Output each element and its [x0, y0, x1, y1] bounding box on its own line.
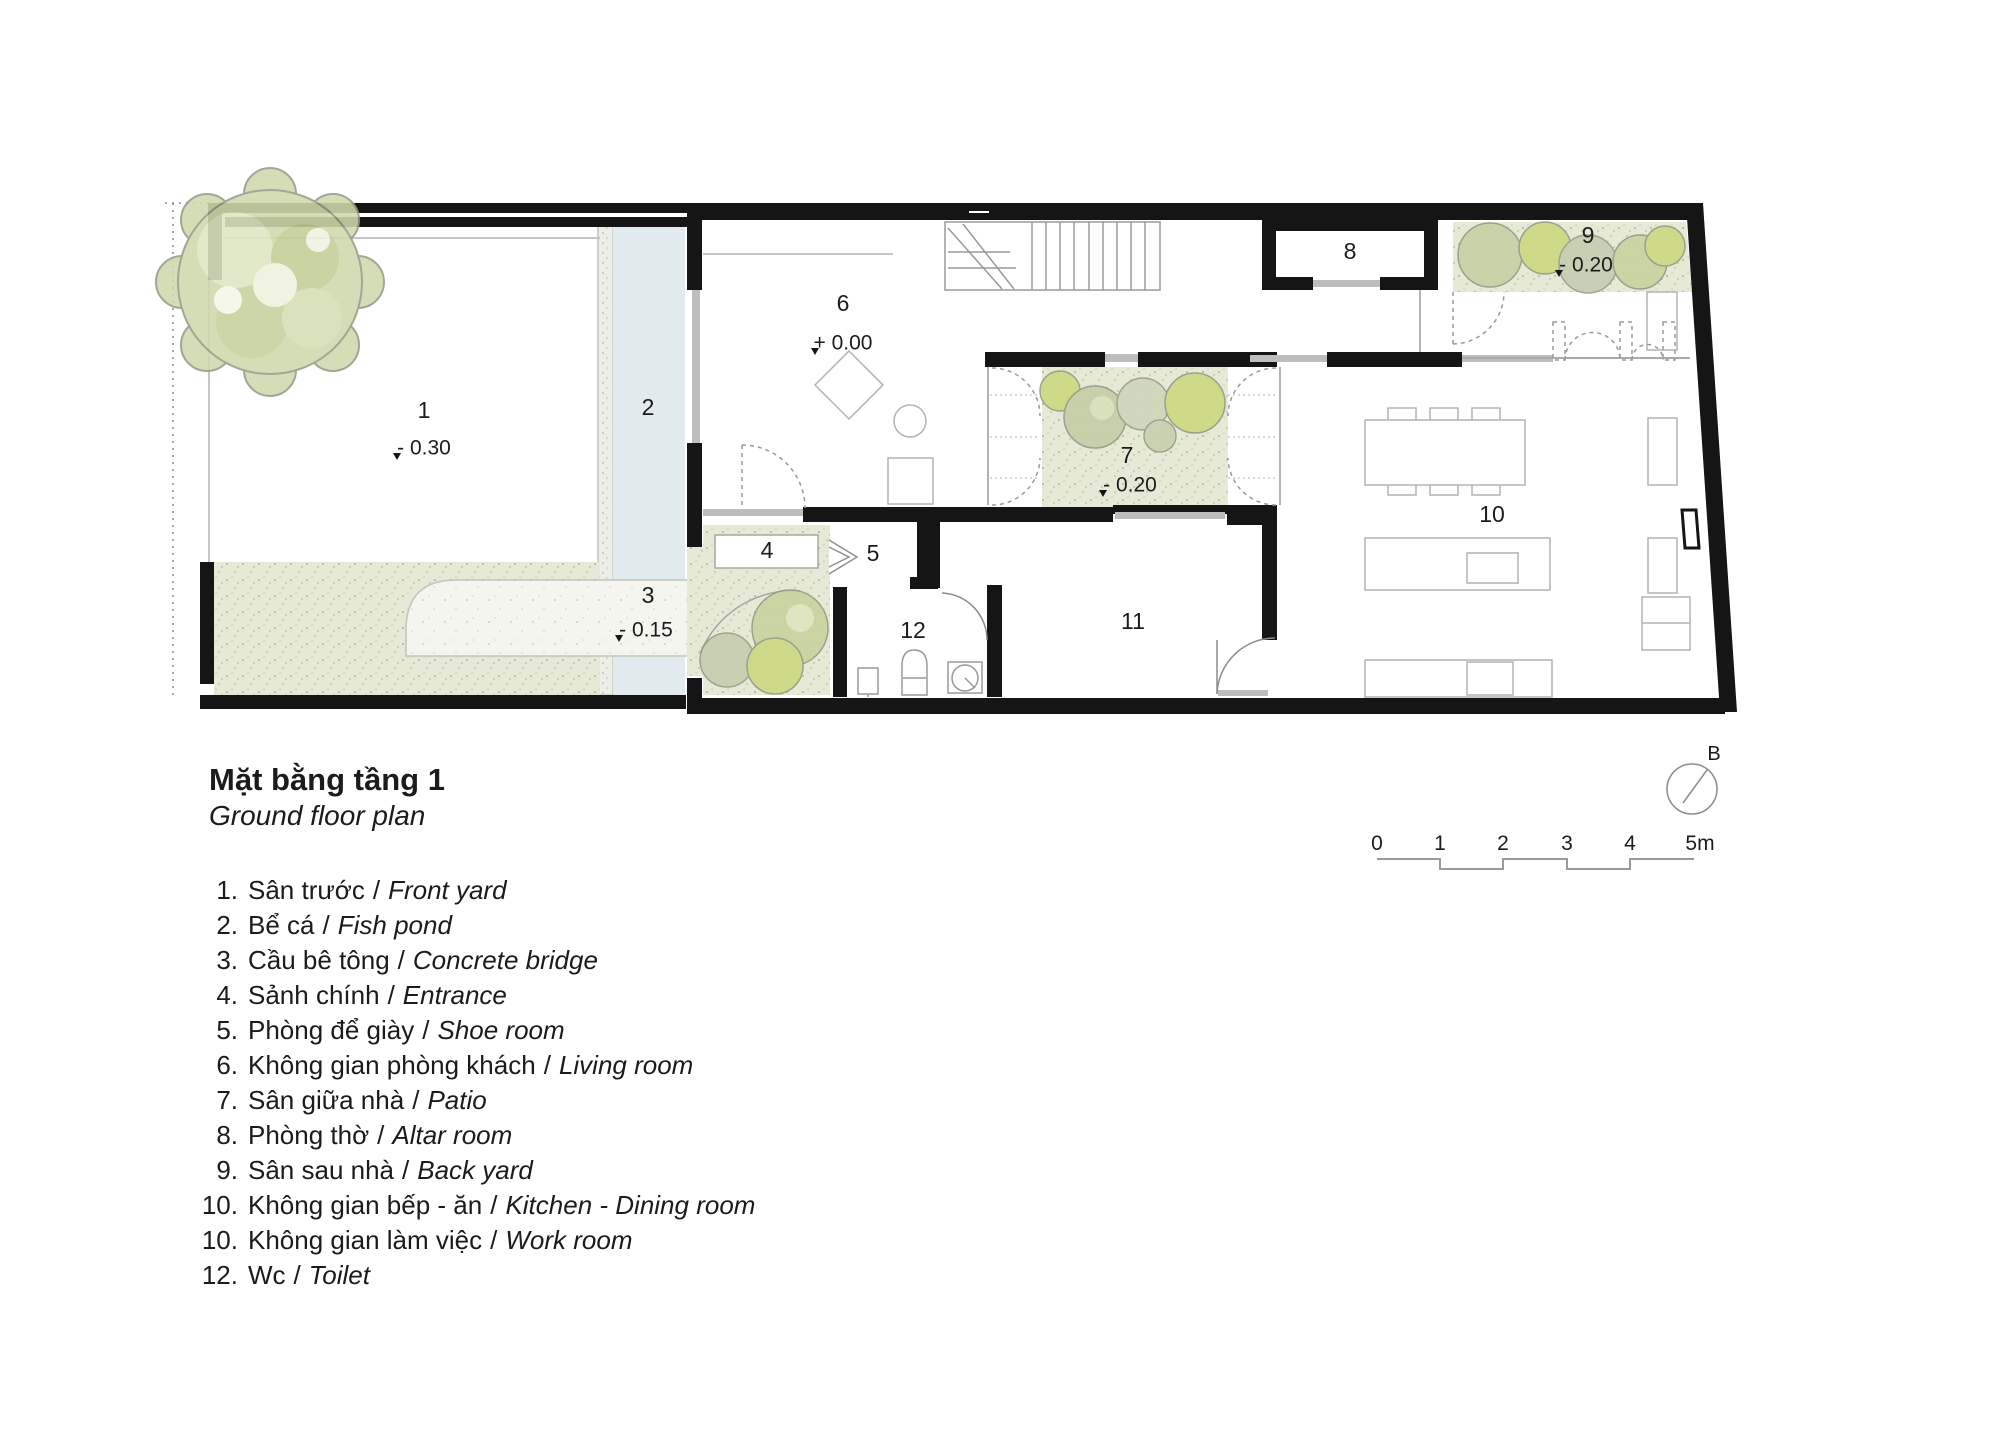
wc-door-arc [942, 593, 987, 640]
legend-vi: Sân giữa nhà [248, 1085, 404, 1115]
legend-item-2: 2.Bể cá/Fish pond [150, 908, 755, 943]
wall-8-top [1262, 220, 1438, 231]
sliding-door-mid [1250, 355, 1327, 362]
legend-vi: Bể cá [248, 910, 315, 940]
legend-sep: / [323, 910, 330, 940]
legend-vi: Phòng để giày [248, 1015, 414, 1045]
legend-en: Patio [427, 1085, 486, 1115]
north-needle [1683, 770, 1707, 803]
legend-num: 9. [150, 1153, 238, 1188]
legend-num: 5. [150, 1013, 238, 1048]
building-left-wall-c [687, 678, 702, 698]
building-bottom-wall [687, 698, 1725, 714]
building-left-wall-a [687, 203, 702, 290]
wc-fixtures [858, 650, 982, 697]
wall-wc-top-stub [910, 577, 938, 589]
stove [1467, 662, 1513, 695]
legend-num: 6. [150, 1048, 238, 1083]
top-wall-vent-slot [969, 211, 989, 213]
scale-bar: 0 1 2 3 4 5m [1371, 832, 1714, 869]
sliding-door-patio-top [1105, 354, 1138, 362]
legend-item-4: 4.Sảnh chính/Entrance [150, 978, 755, 1013]
legend-num: 7. [150, 1083, 238, 1118]
scale-tick-4: 4 [1624, 832, 1636, 855]
patio-fold-arc-2 [992, 458, 1040, 505]
yard-bottom-wall [200, 695, 686, 709]
dining-table [1365, 420, 1525, 485]
colonnade-post-1 [1553, 322, 1565, 360]
legend-item-8: 8.Phòng thờ/Altar room [150, 1118, 755, 1153]
legend-vi: Sân sau nhà [248, 1155, 394, 1185]
legend-item-7: 7.Sân giữa nhà/Patio [150, 1083, 755, 1118]
legend-en: Kitchen - Dining room [505, 1190, 755, 1220]
legend-sep: / [398, 945, 405, 975]
sliding-door-altar [1313, 280, 1380, 287]
room-label-6: 6 [837, 290, 850, 316]
legend-item-9: 9.Sân sau nhà/Back yard [150, 1153, 755, 1188]
yard-left-wall-bottom [200, 562, 214, 684]
wall-wc-right [987, 585, 1002, 697]
colonnade-post-2 [1620, 322, 1632, 360]
legend-en: Toilet [309, 1260, 370, 1290]
living-door-arc [742, 445, 805, 508]
wc-sink [858, 668, 878, 694]
legend-num: 4. [150, 978, 238, 1013]
room11-door-arc [1217, 638, 1275, 694]
legend-num: 1. [150, 873, 238, 908]
scale-tick-5: 5m [1685, 832, 1714, 855]
living-armchair [815, 351, 883, 419]
legend-en: Shoe room [437, 1015, 564, 1045]
legend-en: Work room [505, 1225, 632, 1255]
patio-fold-arc-1 [992, 368, 1040, 416]
title-block: Mặt bằng tầng 1 Ground floor plan [209, 762, 445, 834]
legend-sep: / [402, 1155, 409, 1185]
legend-sep: / [373, 875, 380, 905]
legend-item-10: 10.Không gian bếp - ăn/Kitchen - Dining … [150, 1188, 755, 1223]
window-left-wall [692, 290, 700, 443]
stair-outline [945, 222, 1160, 290]
legend-vi: Không gian làm việc [248, 1225, 482, 1255]
patio-fold-arc-3 [1228, 368, 1276, 416]
building-top-wall [687, 203, 1690, 220]
legend-item-12: 12.Wc/Toilet [150, 1258, 755, 1293]
colonnade-post-3 [1663, 322, 1675, 360]
entrance-chevron-icon [829, 540, 857, 574]
legend-sep: / [422, 1015, 429, 1045]
room-label-7: 7 [1121, 442, 1134, 468]
scale-tick-1: 1 [1434, 832, 1446, 855]
legend-sep: / [412, 1085, 419, 1115]
legend-vi: Wc [248, 1260, 286, 1290]
scale-tick-3: 3 [1561, 832, 1573, 855]
legend-en: Altar room [392, 1120, 512, 1150]
legend-sep: / [544, 1050, 551, 1080]
legend-en: Living room [559, 1050, 693, 1080]
wc-toilet [902, 650, 927, 695]
room-level-9: - 0.20 [1559, 254, 1613, 277]
room-label-2: 2 [642, 394, 655, 420]
north-circle [1667, 764, 1717, 814]
living-side-table [894, 405, 926, 437]
tree-front-yard [156, 168, 384, 396]
legend-sep: / [377, 1120, 384, 1150]
room-level-1: - 0.30 [397, 437, 451, 460]
legend-vi: Không gian bếp - ăn [248, 1190, 482, 1220]
legend-en: Fish pond [338, 910, 452, 940]
room-label-3: 3 [642, 582, 655, 608]
living-seat [888, 458, 933, 504]
slant-wall-window [1682, 510, 1699, 548]
room-label-4: 4 [761, 537, 774, 563]
wall-wc-left [833, 587, 847, 697]
room-label-10: 10 [1479, 501, 1505, 527]
floor-plan-page: 1 - 0.30 2 3 - 0.15 4 5 6 + 0.00 7 - 0.2… [0, 0, 2000, 1438]
legend-item-1: 1.Sân trước/Front yard [150, 873, 755, 908]
room-label-11: 11 [1121, 608, 1145, 634]
wall-patio-north-a [985, 352, 1105, 367]
scale-tick-0: 0 [1371, 832, 1383, 855]
building-left-wall-b [687, 443, 702, 547]
kitchen-island [1365, 538, 1550, 590]
legend-num: 10. [150, 1223, 238, 1258]
legend-item-3: 3.Cầu bê tông/Concrete bridge [150, 943, 755, 978]
legend-sep: / [490, 1190, 497, 1220]
legend-vi: Phòng thờ [248, 1120, 369, 1150]
building-slanted-wall [1686, 203, 1737, 712]
legend-en: Front yard [388, 875, 507, 905]
kitchen-cabinets [1642, 292, 1690, 650]
sliding-door-11-top [1115, 512, 1225, 519]
wall-8-bottom-a [1262, 277, 1313, 290]
legend-num: 3. [150, 943, 238, 978]
legend-item-11: 10.Không gian làm việc/Work room [150, 1223, 755, 1258]
wall-11-right [1262, 507, 1277, 640]
wc-washer-box [948, 662, 982, 693]
room-label-5: 5 [867, 540, 880, 566]
room-label-9: 9 [1582, 222, 1595, 248]
room-level-7: - 0.20 [1103, 474, 1157, 497]
legend-sep: / [490, 1225, 497, 1255]
room-level-3: - 0.15 [619, 619, 673, 642]
threshold-11-door [1218, 690, 1268, 696]
kitchen-counter [1365, 660, 1552, 697]
room-label-8: 8 [1344, 238, 1357, 264]
room-label-12: 12 [900, 617, 926, 643]
legend-vi: Sân trước [248, 875, 365, 905]
plan-title-vi: Mặt bằng tầng 1 [209, 762, 445, 798]
room-level-6: + 0.00 [814, 332, 873, 355]
legend-num: 8. [150, 1118, 238, 1153]
legend-num: 2. [150, 908, 238, 943]
window-entrance [703, 509, 803, 516]
legend-item-6: 6.Không gian phòng khách/Living room [150, 1048, 755, 1083]
room-label-1: 1 [418, 397, 431, 423]
wall-8-bottom-b [1380, 277, 1438, 290]
north-label: B [1707, 743, 1720, 765]
legend-en: Entrance [403, 980, 507, 1010]
staircase [945, 222, 1160, 290]
legend: 1.Sân trước/Front yard 2.Bể cá/Fish pond… [150, 873, 755, 1293]
legend-num: 12. [150, 1258, 238, 1293]
legend-sep: / [294, 1260, 301, 1290]
scale-bar-line [1377, 859, 1694, 869]
colonnade-arc-1 [1565, 333, 1620, 360]
legend-item-5: 5.Phòng để giày/Shoe room [150, 1013, 755, 1048]
wall-mid-right [1327, 352, 1462, 367]
legend-vi: Không gian phòng khách [248, 1050, 536, 1080]
dining-set [1365, 408, 1525, 495]
north-arrow-icon: B [1667, 743, 1721, 814]
legend-vi: Sảnh chính [248, 980, 380, 1010]
scale-tick-2: 2 [1497, 832, 1509, 855]
backyard-door-arc [1453, 292, 1504, 344]
patio-fold-arc-4 [1228, 458, 1276, 505]
plan-title-en: Ground floor plan [209, 798, 445, 834]
legend-sep: / [388, 980, 395, 1010]
island-sink [1467, 553, 1518, 583]
legend-vi: Cầu bê tông [248, 945, 390, 975]
wall-living-south [803, 507, 1113, 522]
legend-en: Concrete bridge [413, 945, 598, 975]
legend-num: 10. [150, 1188, 238, 1223]
legend-en: Back yard [417, 1155, 533, 1185]
